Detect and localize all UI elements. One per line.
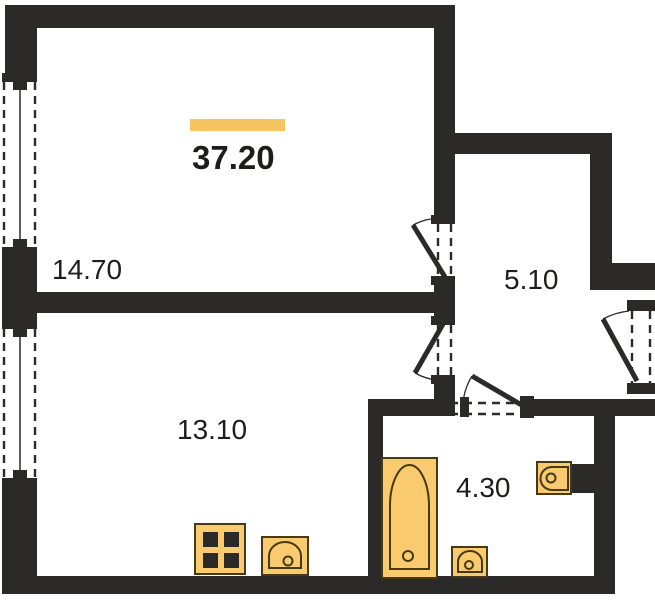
labels: 37.20 14.70 5.10 13.10 4.30 [52, 139, 559, 503]
wall-notch-right [590, 263, 655, 290]
stove-burner [203, 553, 218, 568]
entrance-bottom-bracket [627, 383, 655, 394]
entrance-top-bracket [627, 300, 655, 311]
window2-top-bar [2, 320, 37, 329]
wall-middle [2, 292, 455, 313]
window2-top-bracket [13, 329, 27, 337]
toilet-icon [537, 462, 571, 494]
fixture-bodies [195, 458, 571, 578]
room-area-label-bathroom: 4.30 [456, 472, 511, 503]
window1-bottom-bracket [13, 239, 27, 247]
window1-bottom-bar [2, 247, 37, 256]
bathroom-sink-icon [452, 547, 487, 577]
wall-center-vertical-mid [434, 285, 455, 318]
room-area-label-bottom-left: 13.10 [177, 414, 247, 445]
fixtures [195, 458, 594, 578]
wall-hallway-top [455, 133, 612, 154]
door1-leaf [413, 225, 445, 277]
wall-center-vertical-top [434, 5, 455, 218]
room-area-label-top-left: 14.70 [52, 254, 122, 285]
wall-bathroom-left [368, 399, 383, 594]
wall-bathroom-top-right [525, 399, 655, 416]
wall-bathroom-right [594, 416, 615, 594]
window1-top-bracket [13, 82, 27, 90]
walls [2, 5, 655, 594]
stove-burner [203, 532, 218, 547]
toilet-tank [570, 464, 594, 493]
wall-top [5, 5, 455, 28]
door1-top-bracket [431, 215, 455, 224]
door2-top-bracket [431, 316, 455, 325]
floor-plan: 37.20 14.70 5.10 13.10 4.30 [0, 0, 655, 600]
wall-bottom [2, 576, 615, 594]
bathtub-icon [382, 458, 437, 578]
total-area-accent-bar [190, 119, 285, 131]
window2-bottom-bar [2, 478, 37, 487]
entrance-arc [603, 311, 629, 319]
window1-top-bar [2, 73, 37, 82]
wall-corner-top-left [5, 5, 37, 75]
stove-burner [224, 532, 239, 547]
floor-plan-canvas: 37.20 14.70 5.10 13.10 4.30 [0, 0, 655, 600]
door2-leaf [415, 324, 443, 373]
total-area-label: 37.20 [192, 139, 275, 176]
wall-hallway-right [590, 133, 612, 265]
window2-bottom-bracket [13, 470, 27, 478]
room-area-label-hallway: 5.10 [504, 264, 559, 295]
kitchen-sink-icon [262, 537, 308, 575]
fixture-dark-parts [570, 464, 594, 493]
stove-burner [224, 553, 239, 568]
